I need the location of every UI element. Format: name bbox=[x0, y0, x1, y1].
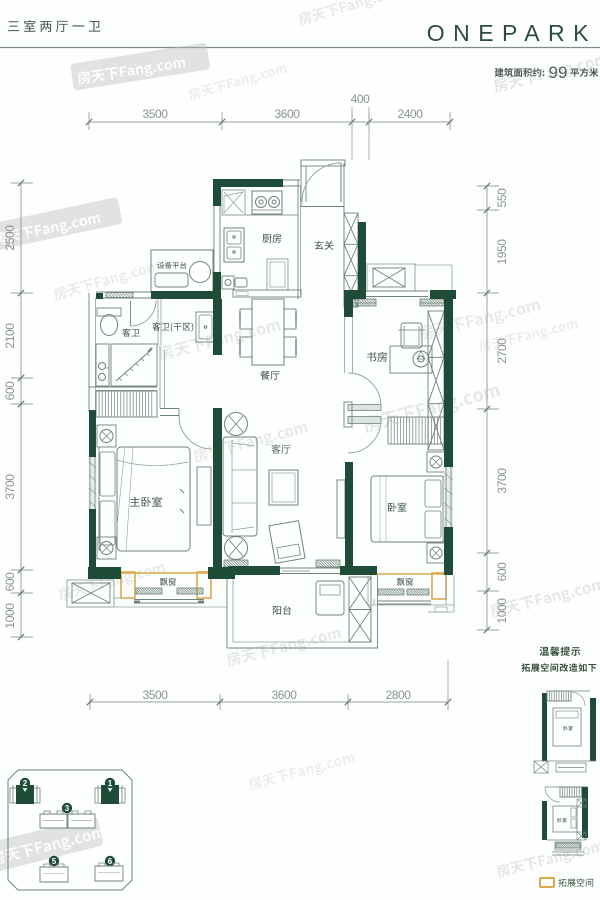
svg-text:1: 1 bbox=[108, 779, 113, 788]
svg-text:2800: 2800 bbox=[385, 688, 411, 702]
svg-text:3700: 3700 bbox=[495, 468, 509, 494]
svg-text:600: 600 bbox=[3, 572, 17, 592]
svg-text:1000: 1000 bbox=[495, 598, 509, 624]
svg-text:1950: 1950 bbox=[495, 239, 509, 265]
svg-text:3: 3 bbox=[65, 804, 70, 813]
svg-text:2: 2 bbox=[23, 779, 28, 788]
svg-text:ONEPARK: ONEPARK bbox=[427, 20, 597, 46]
svg-text:3600: 3600 bbox=[271, 688, 297, 702]
svg-text:400: 400 bbox=[351, 92, 371, 106]
svg-text:2100: 2100 bbox=[3, 323, 17, 349]
svg-text:3500: 3500 bbox=[142, 107, 168, 121]
svg-text:2500: 2500 bbox=[3, 225, 17, 251]
svg-text:1000: 1000 bbox=[3, 603, 17, 629]
svg-text:2400: 2400 bbox=[397, 107, 423, 121]
svg-text:600: 600 bbox=[495, 562, 509, 582]
svg-text:3700: 3700 bbox=[3, 474, 17, 500]
svg-text:3600: 3600 bbox=[274, 107, 300, 121]
svg-text:2700: 2700 bbox=[495, 338, 509, 364]
svg-text:600: 600 bbox=[3, 381, 17, 401]
svg-text:3500: 3500 bbox=[142, 688, 168, 702]
svg-text:6: 6 bbox=[108, 857, 113, 866]
svg-text:550: 550 bbox=[495, 188, 509, 208]
svg-text:5: 5 bbox=[52, 857, 57, 866]
